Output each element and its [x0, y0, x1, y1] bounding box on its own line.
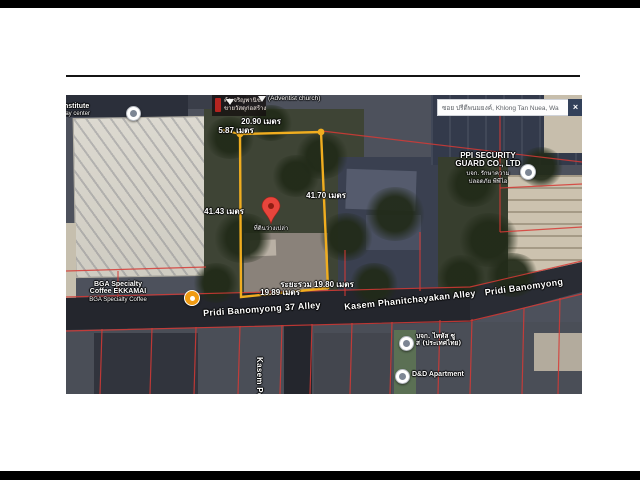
measurement-right: 41.70 เมตร	[306, 192, 346, 200]
letterbox-bottom-bar	[0, 471, 640, 480]
plot-outline-polygon	[240, 132, 328, 297]
poi-marker-icon	[258, 96, 266, 102]
street-kasem-po-vertical: Kasem Po	[255, 357, 263, 394]
search-close-button[interactable]: ×	[568, 99, 582, 116]
satellite-map-photo: 20.90 เมตร 5.87 เมตร 41.43 เมตร 41.70 เม…	[66, 95, 582, 394]
poi-institute-line2: day center	[66, 111, 90, 117]
screenshot-root: { "map": { "colors": { "plot_outline": "…	[0, 0, 640, 480]
search-query-text: ซอย ปรีดีพนมยงค์, Khlong Tan Nuea, Wa	[438, 100, 569, 113]
plot-vertex-handle	[318, 129, 325, 136]
poi-institute-label: Institute day center	[66, 103, 90, 118]
poi-ppi-line2: GUARD CO., LTD	[455, 159, 520, 168]
measurement-bottom: 19.89 เมตร	[260, 289, 300, 297]
poi-dd-apartment: D&D Apartment	[412, 371, 464, 378]
photo-top-border	[66, 75, 580, 77]
poi-bga-line1: BGA Specialty	[94, 281, 142, 288]
poi-ppi-line4: ปลอดภัย พีพีไอ	[469, 179, 508, 185]
coffee-poi-icon	[184, 290, 200, 306]
location-pin-icon[interactable]	[262, 197, 280, 224]
company-poi-icon	[399, 336, 414, 351]
poi-bga-line2: Coffee EKKAMAI	[90, 288, 146, 295]
poi-institute-line1: Institute	[66, 103, 89, 110]
institute-poi-icon	[126, 106, 141, 121]
poi-ppi-line3: บจก. รักษาความ	[466, 171, 509, 177]
poi-ppi-security: PPI SECURITY GUARD CO., LTD บจก. รักษาคว…	[455, 152, 520, 186]
poi-bga-line3: BGA Specialty Coffee	[89, 297, 147, 303]
measurement-top-left: 5.87 เมตร	[218, 127, 253, 135]
poi-shop-line2: ขายวัสดุก่อสร้าง	[224, 106, 266, 112]
poi-adventist-church: (Adventist church)	[268, 96, 320, 103]
ppi-poi-icon	[520, 164, 536, 180]
pin-caption: ที่ดินว่างเปล่า	[254, 226, 289, 232]
search-bar[interactable]: ซอย ปรีดีพนมยงค์, Khlong Tan Nuea, Wa	[437, 99, 569, 116]
letterbox-top-bar	[0, 0, 640, 8]
poi-thai-company: บจก. ไทหัส ซู ส (ประเทศไทย)	[416, 333, 461, 347]
shop-building-icon	[215, 98, 221, 112]
cadastral-lines	[66, 103, 582, 394]
poi-thai-co-line2: ส (ประเทศไทย)	[416, 339, 461, 347]
apartment-poi-icon	[395, 369, 410, 384]
measurement-left: 41.43 เมตร	[204, 208, 244, 216]
poi-bga-coffee: BGA Specialty Coffee EKKAMAI BGA Special…	[89, 281, 147, 303]
map-vector-overlay	[66, 95, 582, 394]
poi-marker-icon	[226, 99, 234, 105]
